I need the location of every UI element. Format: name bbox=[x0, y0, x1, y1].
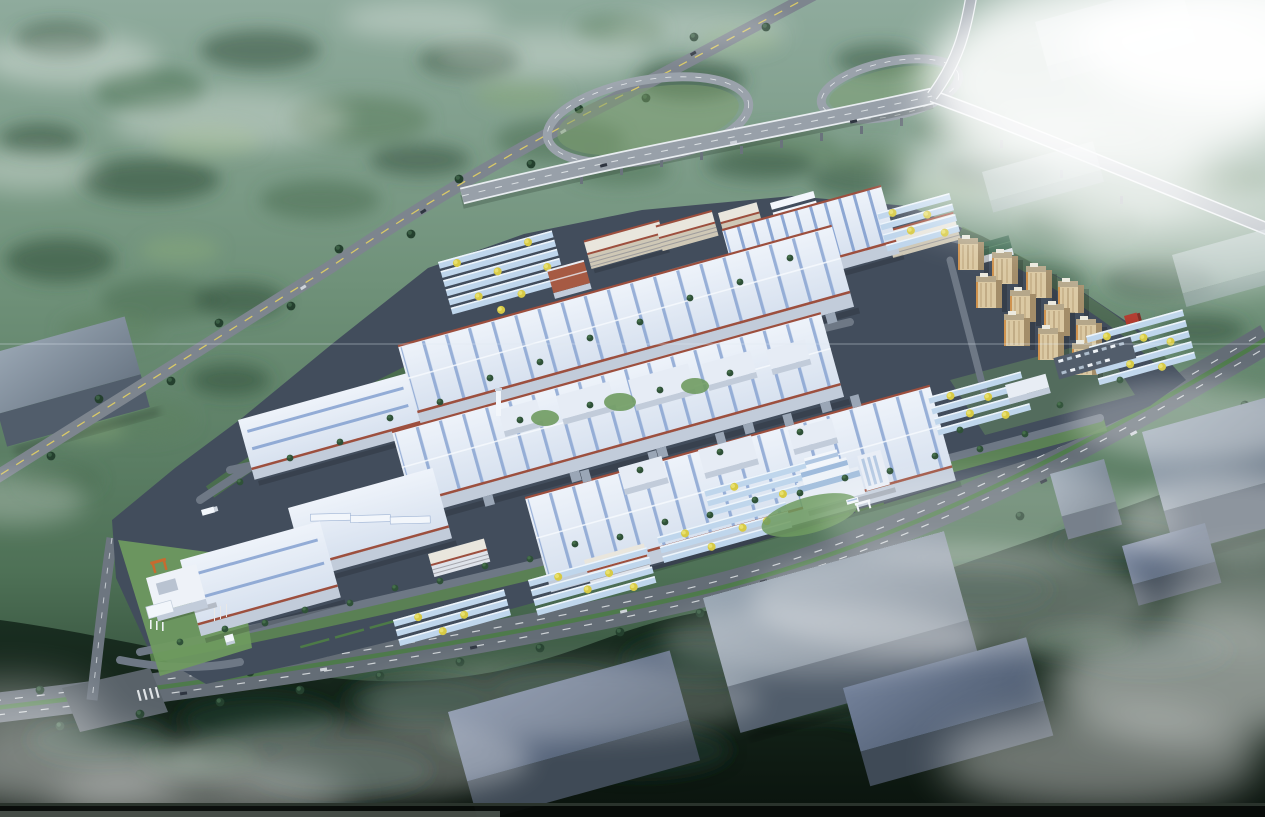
aerial-rendering-canvas bbox=[0, 0, 1265, 817]
courtyard-green bbox=[681, 378, 709, 394]
scan-edge-light-strip bbox=[0, 811, 500, 817]
industrial-park-rendering bbox=[0, 0, 1265, 817]
scan-line-artifact bbox=[0, 343, 1265, 345]
courtyard-green bbox=[531, 410, 559, 426]
chimney-stack bbox=[495, 388, 502, 416]
courtyard-green bbox=[604, 393, 636, 411]
scan-edge-gray bbox=[0, 803, 1265, 806]
